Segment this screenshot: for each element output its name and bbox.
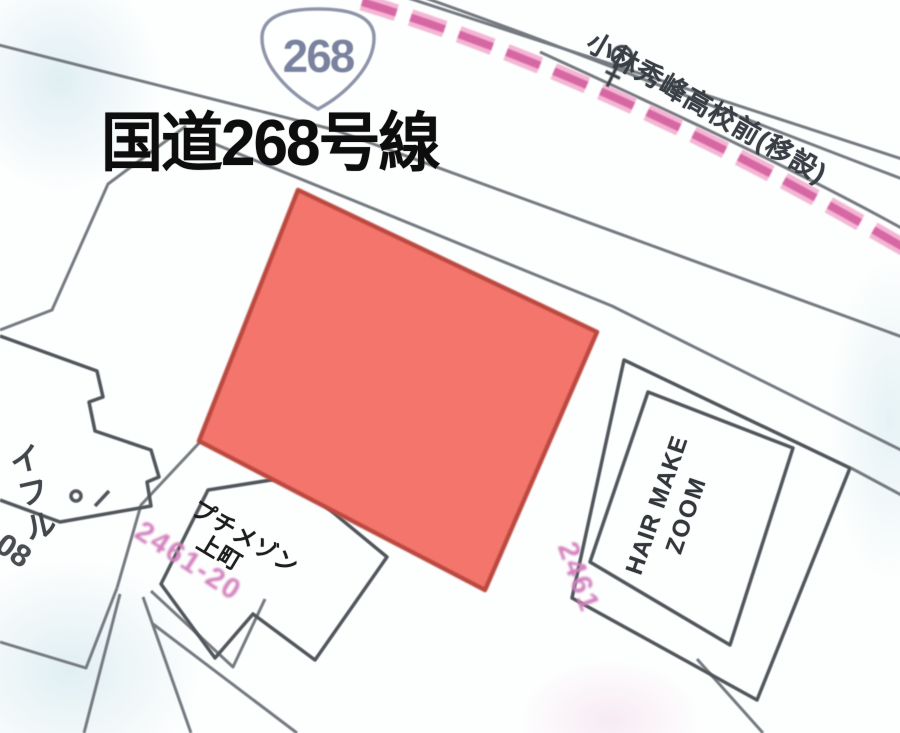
route-268-shield-icon: 268 (262, 9, 374, 109)
route-shield-number: 268 (283, 30, 355, 82)
boundary-line-right (851, 468, 900, 497)
parcel-boundary-bottom-left (0, 588, 117, 668)
route-268-road-label: 国道268号線 (101, 110, 438, 178)
map-glyph-mark (95, 491, 109, 506)
planned-road-dashed-band (362, 2, 900, 250)
map-glyph-mark (71, 491, 81, 501)
boundary-line (151, 591, 265, 667)
map-canvas[interactable]: 268 国道268号線 小林秀峰高校前(移設) HAIR MAKE ZOOM プ… (0, 0, 900, 733)
boundary-line (153, 624, 297, 733)
boundary-line (84, 594, 120, 733)
